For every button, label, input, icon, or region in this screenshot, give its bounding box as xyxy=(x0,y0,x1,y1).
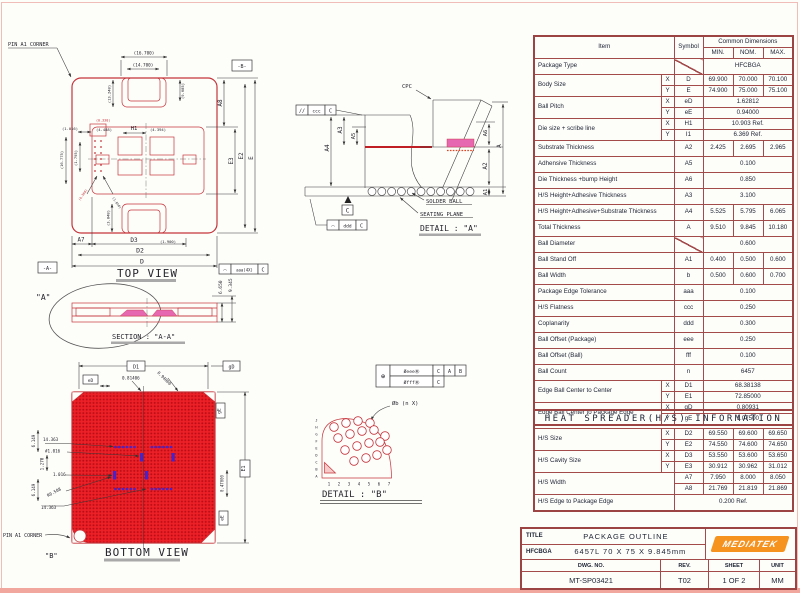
cpc-label: CPC xyxy=(402,84,412,90)
package-type: HFCBGA xyxy=(522,549,556,555)
dimensions-table: ItemSymbolCommon DimensionsMIN.NOM.MAX.P… xyxy=(533,35,794,426)
table-row: Ball Offset (Ball)fff0.100 xyxy=(534,349,793,365)
section-aa: "A" 6.650 9.345 SECTION : "A-A" xyxy=(36,278,236,353)
datum-b-label: -B- xyxy=(237,64,246,70)
table-cell: 69.650 xyxy=(763,429,793,440)
dim-label: (3.848) xyxy=(106,210,111,226)
title-label: TITLE xyxy=(522,533,547,539)
table-cell: 75.000 xyxy=(733,86,763,97)
dim-label: A4 xyxy=(324,144,331,152)
dim-label: A2 xyxy=(482,162,489,170)
svg-text:ccc: ccc xyxy=(312,110,320,115)
dim-label: A1 xyxy=(483,189,489,196)
table-cell: Ball Diameter xyxy=(534,237,674,253)
svg-text:⊕: ⊕ xyxy=(381,373,386,381)
table-cell: E2 xyxy=(674,440,703,451)
table-cell: 8.050 xyxy=(763,473,793,484)
svg-text:A: A xyxy=(448,369,451,375)
table-row: Ball Countn6457 xyxy=(534,365,793,381)
table-cell: Item xyxy=(534,36,674,59)
svg-text:7: 7 xyxy=(388,482,391,487)
dim-label: E1 xyxy=(241,465,247,471)
dim-label: A7 xyxy=(78,238,85,244)
highlighted-balls xyxy=(113,446,175,491)
table-cell: Y xyxy=(661,108,674,119)
table-cell: 75.100 xyxy=(763,86,793,97)
solder-balls xyxy=(368,188,474,196)
table-cell: 69.600 xyxy=(733,429,763,440)
table-row: Ball Diameter0.600 xyxy=(534,237,793,253)
table-cell: Common Dimensions xyxy=(703,36,793,48)
dim-label: 0.81406 xyxy=(122,376,140,381)
dim-label: gD xyxy=(228,365,234,371)
svg-text:C: C xyxy=(315,461,317,465)
dim-label: 6.149 xyxy=(31,483,36,496)
svg-text:E: E xyxy=(315,447,317,451)
table-cell: X xyxy=(661,381,674,392)
table-cell: 6.065 xyxy=(763,205,793,221)
table-cell: A2 xyxy=(674,141,703,157)
table-row: H/S Edge to Package Edge0.200 Ref. xyxy=(534,495,793,512)
table-cell: 8.000 xyxy=(733,473,763,484)
table-cell: NOM. xyxy=(733,48,763,59)
table-cell: Y xyxy=(661,440,674,451)
dim-label: R0.508 xyxy=(46,486,62,498)
svg-text:J: J xyxy=(315,419,317,423)
bottom-view-title: BOTTOM VIEW xyxy=(105,546,189,559)
table-row: H/S Cavity SizeXD353.55053.60053.650 xyxy=(534,451,793,462)
heat-spreader-table: HEAT SPREADER(H/S) INFORMATIONH/S SizeXD… xyxy=(533,409,794,512)
table-cell: H/S Height+Adhesive Thickness xyxy=(534,189,674,205)
table-cell: Body Size xyxy=(534,75,661,97)
table-cell: 0.500 xyxy=(703,269,733,285)
dim-label: 0.47000 xyxy=(220,474,225,491)
datum-c-label: C xyxy=(346,208,350,215)
table-cell: D2 xyxy=(674,429,703,440)
dwg-no-value: MT-SP03421 xyxy=(522,572,661,588)
table-cell: MIN. xyxy=(703,48,733,59)
table-cell: A8 xyxy=(674,484,703,495)
table-cell: 0.250 xyxy=(703,333,793,349)
dim-label: D1 xyxy=(133,365,139,371)
pin-a1-label: PIN A1 CORNER xyxy=(8,42,49,48)
table-cell: 2.425 xyxy=(703,141,733,157)
svg-text:C: C xyxy=(437,380,440,386)
table-cell: 0.300 xyxy=(703,317,793,333)
table-row: Ball Widthb0.5000.6000.700 xyxy=(534,269,793,285)
table-row: H/S WidthA77.9508.0008.050 xyxy=(534,473,793,484)
table-cell: Coplanarity xyxy=(534,317,674,333)
table-cell: 10.180 xyxy=(763,221,793,237)
table-cell: H/S Cavity Size xyxy=(534,451,661,473)
dim-label: 1.016 xyxy=(53,472,66,477)
table-cell: 31.012 xyxy=(763,462,793,473)
table-row: Package TypeHFCBGA xyxy=(534,59,793,75)
dim-label: 1.270 xyxy=(40,457,45,470)
dim-label: A6 xyxy=(483,130,489,137)
seating-plane-label: SEATING PLANE xyxy=(420,212,463,218)
title-block: TITLE PACKAGE OUTLINE HFCBGA 6457L 70 X … xyxy=(520,527,797,590)
svg-text:◠: ◠ xyxy=(223,268,226,274)
table-cell: 0.700 xyxy=(763,269,793,285)
dim-label: 9.345 xyxy=(228,278,234,292)
table-cell: H/S Width xyxy=(534,473,674,495)
table-row: Ball Stand OffA10.4000.5000.600 xyxy=(534,253,793,269)
dim-label: A3 xyxy=(337,126,344,134)
table-cell: 3.100 xyxy=(703,189,793,205)
svg-text:3: 3 xyxy=(348,482,351,487)
table-cell: 74.600 xyxy=(733,440,763,451)
dim-label: (1.016) xyxy=(62,126,78,131)
svg-text:C: C xyxy=(261,268,264,274)
bottom-view: D1 gD eD 0.81406 0.94000 gE E1 0.47000 e… xyxy=(3,361,250,562)
dim-label: E xyxy=(248,156,255,160)
table-cell: X xyxy=(661,429,674,440)
svg-text:◠: ◠ xyxy=(331,224,334,230)
table-cell: 30.912 xyxy=(703,462,733,473)
svg-text:C: C xyxy=(329,109,332,115)
svg-text:ØeeeⓂ: ØeeeⓂ xyxy=(404,368,420,375)
table-cell: 10.903 Ref. xyxy=(703,119,793,130)
pin-a1-ball-marker xyxy=(74,530,86,542)
table-cell: A7 xyxy=(674,473,703,484)
drawing-views: (0.508) (1.016) (0.330) (1.016) (1.795) … xyxy=(0,0,535,593)
table-cell: Symbol xyxy=(674,36,703,59)
svg-text:H: H xyxy=(315,426,317,430)
svg-text:ØfffⓂ: ØfffⓂ xyxy=(404,379,420,386)
drawing-title: PACKAGE OUTLINE xyxy=(547,532,705,541)
table-cell: 53.650 xyxy=(763,451,793,462)
dim-label: D3 xyxy=(130,237,138,244)
table-cell: Y xyxy=(661,462,674,473)
table-cell: D1 xyxy=(674,381,703,392)
pin-a1-label: PIN A1 CORNER xyxy=(3,533,43,539)
table-cell: 21.869 xyxy=(763,484,793,495)
die-ball-dots xyxy=(94,140,102,172)
table-cell: 5.525 xyxy=(703,205,733,221)
datum-a-box xyxy=(38,262,57,273)
dim-label: eD xyxy=(88,378,94,384)
b-callout: "B" xyxy=(45,552,58,560)
package-desc: 6457L 70 X 75 X 9.845mm xyxy=(556,547,705,556)
svg-text:B: B xyxy=(459,369,462,375)
table-row: HEAT SPREADER(H/S) INFORMATION xyxy=(534,410,793,429)
table-cell: 53.600 xyxy=(733,451,763,462)
svg-text:B: B xyxy=(315,468,317,472)
table-cell: H/S Size xyxy=(534,429,661,451)
top-view: (0.508) (1.016) (0.330) (1.016) (1.795) … xyxy=(8,42,268,282)
table-cell: E1 xyxy=(674,392,703,403)
dim-label: (1.795) xyxy=(73,150,78,166)
dim-label: (0.330) xyxy=(96,119,110,123)
table-cell: A3 xyxy=(674,189,703,205)
table-row: Coplanarityddd0.300 xyxy=(534,317,793,333)
table-cell: 6.369 Ref. xyxy=(703,130,793,141)
table-row: Ball PitchXeD1.62812 xyxy=(534,97,793,108)
table-cell: H/S Height+Adhesive+Substrate Thickness xyxy=(534,205,674,221)
dim-label: A5 xyxy=(351,133,357,140)
dim-label: (0.508) xyxy=(78,188,89,201)
table-cell: eE xyxy=(674,108,703,119)
dim-label: A8 xyxy=(217,99,224,107)
top-view-title: TOP VIEW xyxy=(117,267,178,280)
table-cell: ddd xyxy=(674,317,703,333)
dim-label: 14.363 xyxy=(43,437,59,442)
dim-label: gE xyxy=(217,408,223,414)
table-cell: eee xyxy=(674,333,703,349)
dwg-no-header: DWG. NO. xyxy=(522,560,661,571)
dim-label: H1 xyxy=(131,126,138,132)
detail-b-balls xyxy=(330,417,392,466)
table-cell: D xyxy=(674,75,703,86)
dim-label: (9.685) xyxy=(180,83,185,99)
table-cell: H1 xyxy=(674,119,703,130)
svg-text:6: 6 xyxy=(378,482,381,487)
table-cell: fff xyxy=(674,349,703,365)
rev-header: REV. xyxy=(661,560,709,571)
table-row: H/S SizeXD269.55069.60069.650 xyxy=(534,429,793,440)
table-cell: Die size + scribe line xyxy=(534,119,661,141)
table-cell: Ball Offset (Ball) xyxy=(534,349,674,365)
table-cell: MAX. xyxy=(763,48,793,59)
table-cell: Ball Offset (Package) xyxy=(534,333,674,349)
svg-text:aaa(4X): aaa(4X) xyxy=(236,268,253,273)
aaa-feature-control-frame: ◠ aaa(4X) C xyxy=(219,264,268,274)
table-cell: 21.769 xyxy=(703,484,733,495)
table-row: Edge Ball Center to CenterXD168.38138 xyxy=(534,381,793,392)
table-cell: 30.962 xyxy=(733,462,763,473)
column-numbers: 1 2 3 4 5 6 7 xyxy=(328,482,391,487)
table-cell: D3 xyxy=(674,451,703,462)
table-cell: Ball Pitch xyxy=(534,97,661,119)
table-cell: 72.85000 xyxy=(703,392,793,403)
table-cell xyxy=(674,237,703,253)
table-cell: 0.94000 xyxy=(703,108,793,119)
dim-label: E2 xyxy=(238,152,245,160)
svg-text:F: F xyxy=(315,440,317,444)
table-cell: Ball Count xyxy=(534,365,674,381)
table-row: Adhensive ThicknessA50.100 xyxy=(534,157,793,173)
table-cell: Ball Width xyxy=(534,269,674,285)
table-row: H/S Height+Adhesive+Substrate ThicknessA… xyxy=(534,205,793,221)
table-cell: 0.250 xyxy=(703,301,793,317)
sheet-header: SHEET xyxy=(709,560,760,571)
table-cell: 9.510 xyxy=(703,221,733,237)
table-cell: 2.695 xyxy=(733,141,763,157)
table-cell: n xyxy=(674,365,703,381)
dim-label: (4.394) xyxy=(150,127,166,132)
table-row: H/S Height+Adhesive ThicknessA33.100 xyxy=(534,189,793,205)
table-cell: H/S Flatness xyxy=(534,301,674,317)
table-cell: 9.845 xyxy=(733,221,763,237)
svg-text:4: 4 xyxy=(358,482,361,487)
unit-header: UNIT xyxy=(760,560,795,571)
row-letters: J H G F E D C B A xyxy=(315,419,318,479)
svg-text:ddd: ddd xyxy=(343,224,351,230)
datum-a-label: -A- xyxy=(43,266,52,272)
table-cell: X xyxy=(661,451,674,462)
table-cell: A4 xyxy=(674,205,703,221)
table-cell: 0.500 xyxy=(733,253,763,269)
table-cell: ccc xyxy=(674,301,703,317)
ball-diameter-label: Øb (n X) xyxy=(392,400,419,407)
table-cell: 0.400 xyxy=(703,253,733,269)
table-cell: A1 xyxy=(674,253,703,269)
table-row: Total ThicknessA9.5109.84510.180 xyxy=(534,221,793,237)
dim-label: (1.900) xyxy=(160,239,176,244)
table-cell: 0.200 Ref. xyxy=(674,495,793,512)
dim-label: D xyxy=(140,258,144,266)
table-cell: eD xyxy=(674,97,703,108)
detail-a: // ccc C CPC xyxy=(296,84,508,236)
table-cell: 74.650 xyxy=(763,440,793,451)
a1-triangle-marker xyxy=(325,463,336,474)
table-cell: 0.100 xyxy=(703,157,793,173)
svg-text://: // xyxy=(299,109,305,115)
table-cell: X xyxy=(661,75,674,86)
table-cell: 2.965 xyxy=(763,141,793,157)
drawing-sheet: (0.508) (1.016) (0.330) (1.016) (1.795) … xyxy=(0,0,800,593)
table-cell: 1.62812 xyxy=(703,97,793,108)
table-cell: Adhensive Thickness xyxy=(534,157,674,173)
svg-text:C: C xyxy=(437,369,440,375)
datum-b-box xyxy=(232,60,252,71)
table-row: Die Thickness +bump HeightA60.850 xyxy=(534,173,793,189)
table-cell: 6457 xyxy=(703,365,793,381)
svg-text:C: C xyxy=(360,224,363,230)
svg-text:1: 1 xyxy=(328,482,331,487)
rev-value: T02 xyxy=(661,572,709,588)
sheet-value: 1 OF 2 xyxy=(709,572,760,588)
table-cell: E3 xyxy=(674,462,703,473)
dim-label: (16.775) xyxy=(59,151,64,169)
table-cell: 0.100 xyxy=(703,349,793,365)
table-cell: X xyxy=(661,119,674,130)
section-callout: "A" xyxy=(36,293,50,302)
dim-label: D2 xyxy=(136,247,144,255)
table-cell: A xyxy=(674,221,703,237)
table-cell: Ball Stand Off xyxy=(534,253,674,269)
table-cell: H/S Edge to Package Edge xyxy=(534,495,674,512)
table-cell: 53.550 xyxy=(703,451,733,462)
table-cell: 0.100 xyxy=(703,285,793,301)
dim-label: eE xyxy=(220,515,226,521)
dim-label: 6.650 xyxy=(218,280,224,294)
svg-text:2: 2 xyxy=(338,482,341,487)
table-cell: Die Thickness +bump Height xyxy=(534,173,674,189)
detail-b-title: DETAIL : "B" xyxy=(322,490,387,500)
dim-label: (1.016) xyxy=(111,196,122,209)
table-cell: Total Thickness xyxy=(534,221,674,237)
table-cell: Edge Ball Center to Center xyxy=(534,381,661,403)
dim-label: 6.149 xyxy=(31,434,36,447)
table-cell: 69.900 xyxy=(703,75,733,86)
dim-label: 0.94000 xyxy=(156,370,172,386)
unit-value: MM xyxy=(760,572,795,588)
table-cell: Package Edge Tolerance xyxy=(534,285,674,301)
dim-label: (4.488) xyxy=(96,127,112,132)
table-cell: A6 xyxy=(674,173,703,189)
table-cell: 0.850 xyxy=(703,173,793,189)
table-cell: 70.000 xyxy=(733,75,763,86)
dim-label: A xyxy=(496,144,503,148)
table-cell xyxy=(674,59,703,75)
table-row: Ball Offset (Package)eee0.250 xyxy=(534,333,793,349)
table-cell: b xyxy=(674,269,703,285)
table-cell: 74.900 xyxy=(703,86,733,97)
table-cell: 74.550 xyxy=(703,440,733,451)
svg-text:A: A xyxy=(315,475,318,479)
position-feature-control-frame: ⊕ ØeeeⓂ C A B ØfffⓂ C xyxy=(376,365,466,387)
solder-ball-label: SOLDER BALL xyxy=(426,199,463,205)
table-cell: 0.600 xyxy=(703,237,793,253)
table-cell: Y xyxy=(661,392,674,403)
table-cell: E xyxy=(674,86,703,97)
table-cell: A5 xyxy=(674,157,703,173)
svg-text:5: 5 xyxy=(368,482,371,487)
table-cell: 0.600 xyxy=(763,253,793,269)
table-cell: 0.600 xyxy=(733,269,763,285)
table-row: Substrate ThicknessA22.4252.6952.965 xyxy=(534,141,793,157)
table-cell: HEAT SPREADER(H/S) INFORMATION xyxy=(534,410,793,429)
dim-label: 14.363 xyxy=(41,505,57,510)
table-cell: HFCBGA xyxy=(703,59,793,75)
table-row: Body SizeXD69.90070.00070.100 xyxy=(534,75,793,86)
table-cell: 7.950 xyxy=(703,473,733,484)
table-row: ItemSymbolCommon Dimensions xyxy=(534,36,793,48)
table-cell: Package Type xyxy=(534,59,674,75)
dim-label: E3 xyxy=(228,157,235,165)
table-cell: Y xyxy=(661,86,674,97)
table-cell: X xyxy=(661,97,674,108)
ddd-feature-control-frame: ◠ ddd C xyxy=(327,220,367,230)
table-row: Package Edge Toleranceaaa0.100 xyxy=(534,285,793,301)
detail-a-title: DETAIL : "A" xyxy=(420,224,478,233)
table-cell: 70.100 xyxy=(763,75,793,86)
ccc-feature-control-frame: // ccc C xyxy=(296,105,336,115)
table-row: Die size + scribe lineXH110.903 Ref. xyxy=(534,119,793,130)
mediatek-logo: MEDIATEK xyxy=(711,536,791,552)
detail-b: ⊕ ØeeeⓂ C A B ØfffⓂ C Øb (n X) J H G xyxy=(315,365,466,504)
dim-label: #1.016 xyxy=(45,449,61,454)
table-row: H/S Flatnessccc0.250 xyxy=(534,301,793,317)
table-cell: 69.550 xyxy=(703,429,733,440)
svg-text:G: G xyxy=(315,433,317,437)
dim-label: (14.700) xyxy=(133,63,154,69)
table-cell: I1 xyxy=(674,130,703,141)
section-title: SECTION : "A-A" xyxy=(112,333,175,341)
table-cell: 21.819 xyxy=(733,484,763,495)
dim-label: (13.248) xyxy=(107,85,112,103)
table-cell: Substrate Thickness xyxy=(534,141,674,157)
table-cell: 68.38138 xyxy=(703,381,793,392)
svg-text:D: D xyxy=(315,454,317,458)
table-cell: aaa xyxy=(674,285,703,301)
table-cell: Y xyxy=(661,130,674,141)
dim-label: (16.700) xyxy=(134,51,155,57)
table-cell: 5.795 xyxy=(733,205,763,221)
